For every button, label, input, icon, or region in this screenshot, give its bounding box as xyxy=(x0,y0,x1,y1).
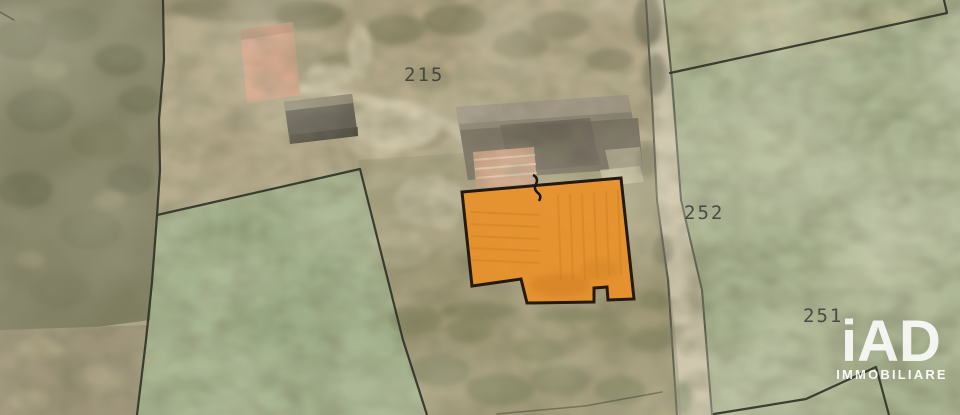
parcel-label-252: 252 xyxy=(684,202,724,224)
iad-logo-wordmark: iAD xyxy=(841,309,941,374)
parcel-label-251: 251 xyxy=(803,305,843,327)
iad-logo-subtitle: IMMOBILIARE xyxy=(836,367,948,382)
highlighted-building-footprint xyxy=(462,175,634,303)
parcel-label-215: 215 xyxy=(404,64,444,86)
cadastral-map: 215 252 251 iAD IMMOBILIARE xyxy=(0,0,960,415)
iad-logo: iAD IMMOBILIARE xyxy=(836,309,948,382)
